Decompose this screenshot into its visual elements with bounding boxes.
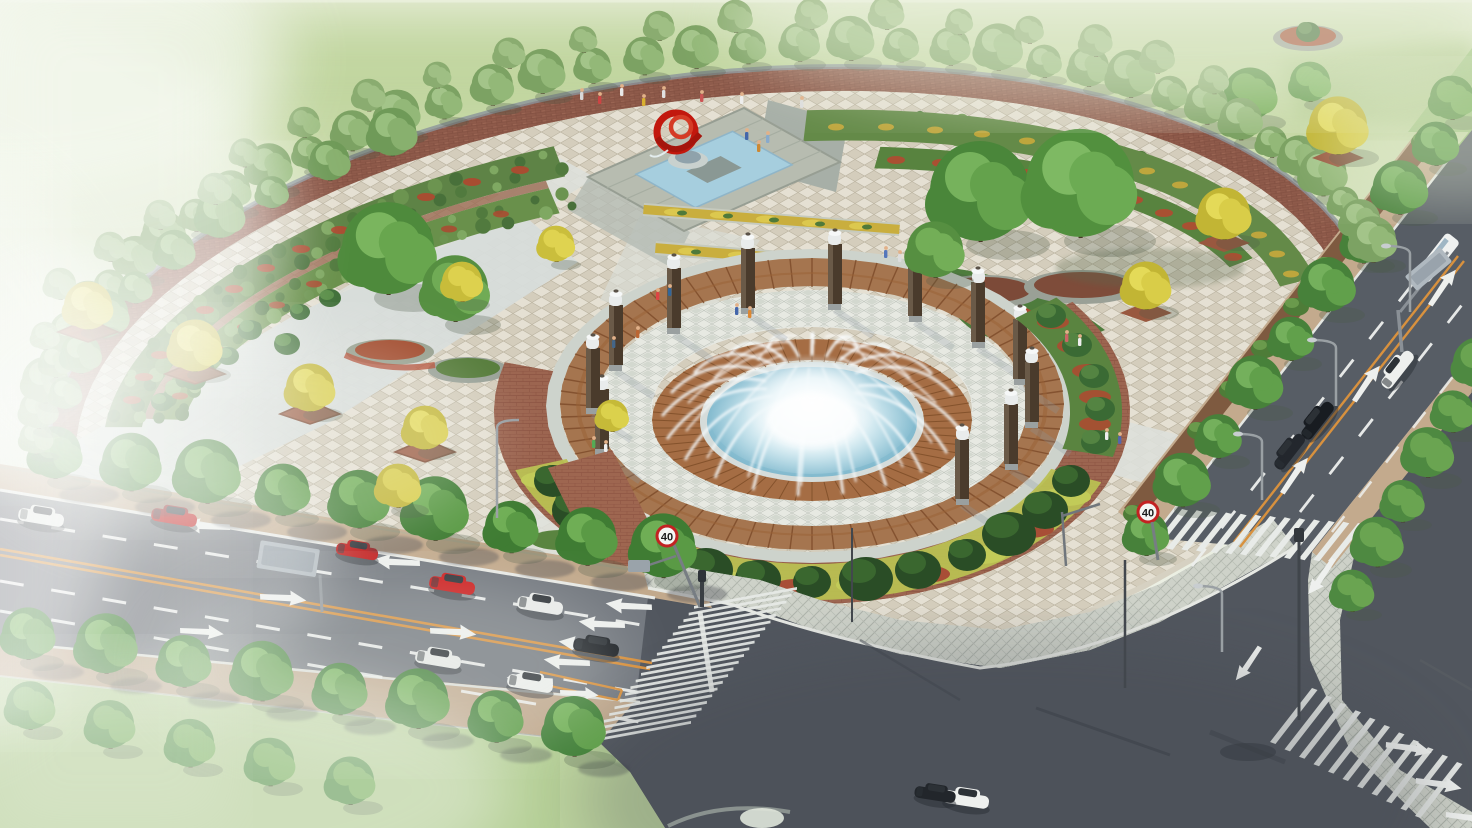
svg-text:40: 40: [1142, 508, 1154, 520]
svg-text:40: 40: [661, 532, 673, 544]
